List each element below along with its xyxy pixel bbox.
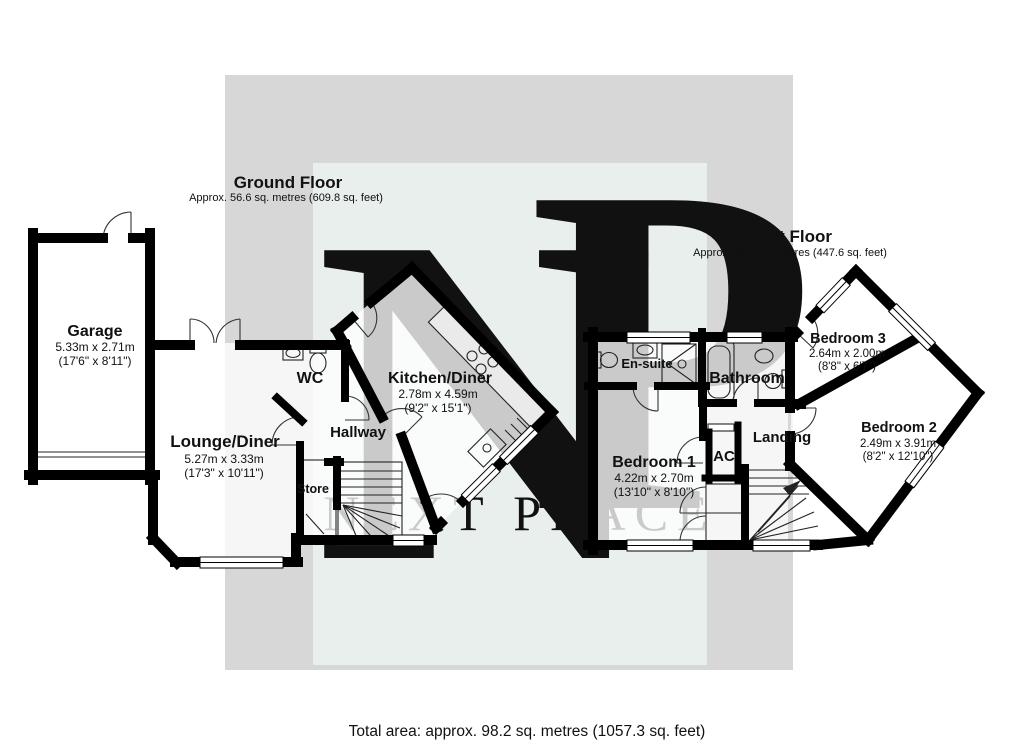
- lounge-dims-imperial: (17'3" x 10'11"): [184, 466, 264, 480]
- room-label-bedroom2: Bedroom 2: [861, 420, 937, 436]
- room-label-ensuite: En-suite: [621, 356, 672, 371]
- bedroom1-dims-metric: 4.22m x 2.70m: [614, 471, 693, 485]
- bedroom2-dims-imperial: (8'2" x 12'10"): [863, 451, 934, 463]
- bathroom-window: [727, 332, 762, 343]
- kitchen-dims-metric: 2.78m x 4.59m: [398, 387, 477, 401]
- bedroom1-window: [627, 540, 693, 551]
- ground-floor-title: Ground Floor: [234, 173, 343, 192]
- room-label-bedroom1: Bedroom 1: [612, 454, 696, 471]
- room-label-ac: AC: [713, 448, 735, 465]
- garage-dims-imperial: (17'6" x 8'11"): [59, 354, 132, 368]
- room-label-garage: Garage: [67, 323, 122, 340]
- first-floor-title: First Floor: [748, 227, 832, 246]
- room-label-landing: Landing: [753, 429, 811, 446]
- room-label-bathroom: Bathroom: [709, 370, 785, 387]
- bedroom3-dims-metric: 2.64m x 2.00m: [809, 348, 885, 360]
- room-label-store: Store: [297, 482, 329, 496]
- ensuite-window: [627, 332, 690, 343]
- floorplan-page: N P NEXT PLACE: [0, 0, 1024, 745]
- bedroom2-dims-metric: 2.49m x 3.91m: [860, 438, 936, 450]
- rear-hall-window: [393, 535, 424, 546]
- ground-floor-area: Approx. 56.6 sq. metres (609.8 sq. feet): [189, 192, 383, 204]
- total-area-text: Total area: approx. 98.2 sq. metres (105…: [349, 723, 706, 740]
- room-label-kitchen: Kitchen/Diner: [388, 370, 492, 387]
- lounge-window: [200, 557, 283, 568]
- bedroom3-dims-imperial: (8'8" x 6'7"): [818, 361, 876, 373]
- bedroom1-dims-imperial: (13'10" x 8'10"): [614, 485, 694, 499]
- lounge-dims-metric: 5.27m x 3.33m: [184, 452, 263, 466]
- garage-dims-metric: 5.33m x 2.71m: [55, 340, 134, 354]
- room-label-bedroom3: Bedroom 3: [810, 331, 886, 347]
- room-label-hallway: Hallway: [330, 424, 387, 441]
- room-label-lounge: Lounge/Diner: [170, 432, 280, 451]
- room-label-wc: WC: [297, 370, 324, 387]
- floorplan-svg: N P NEXT PLACE: [0, 0, 1024, 745]
- first-floor-area: Approx. 41.6 sq. metres (447.6 sq. feet): [693, 247, 887, 259]
- stairs-window: [753, 540, 810, 551]
- kitchen-dims-imperial: (9'2" x 15'1"): [404, 401, 471, 415]
